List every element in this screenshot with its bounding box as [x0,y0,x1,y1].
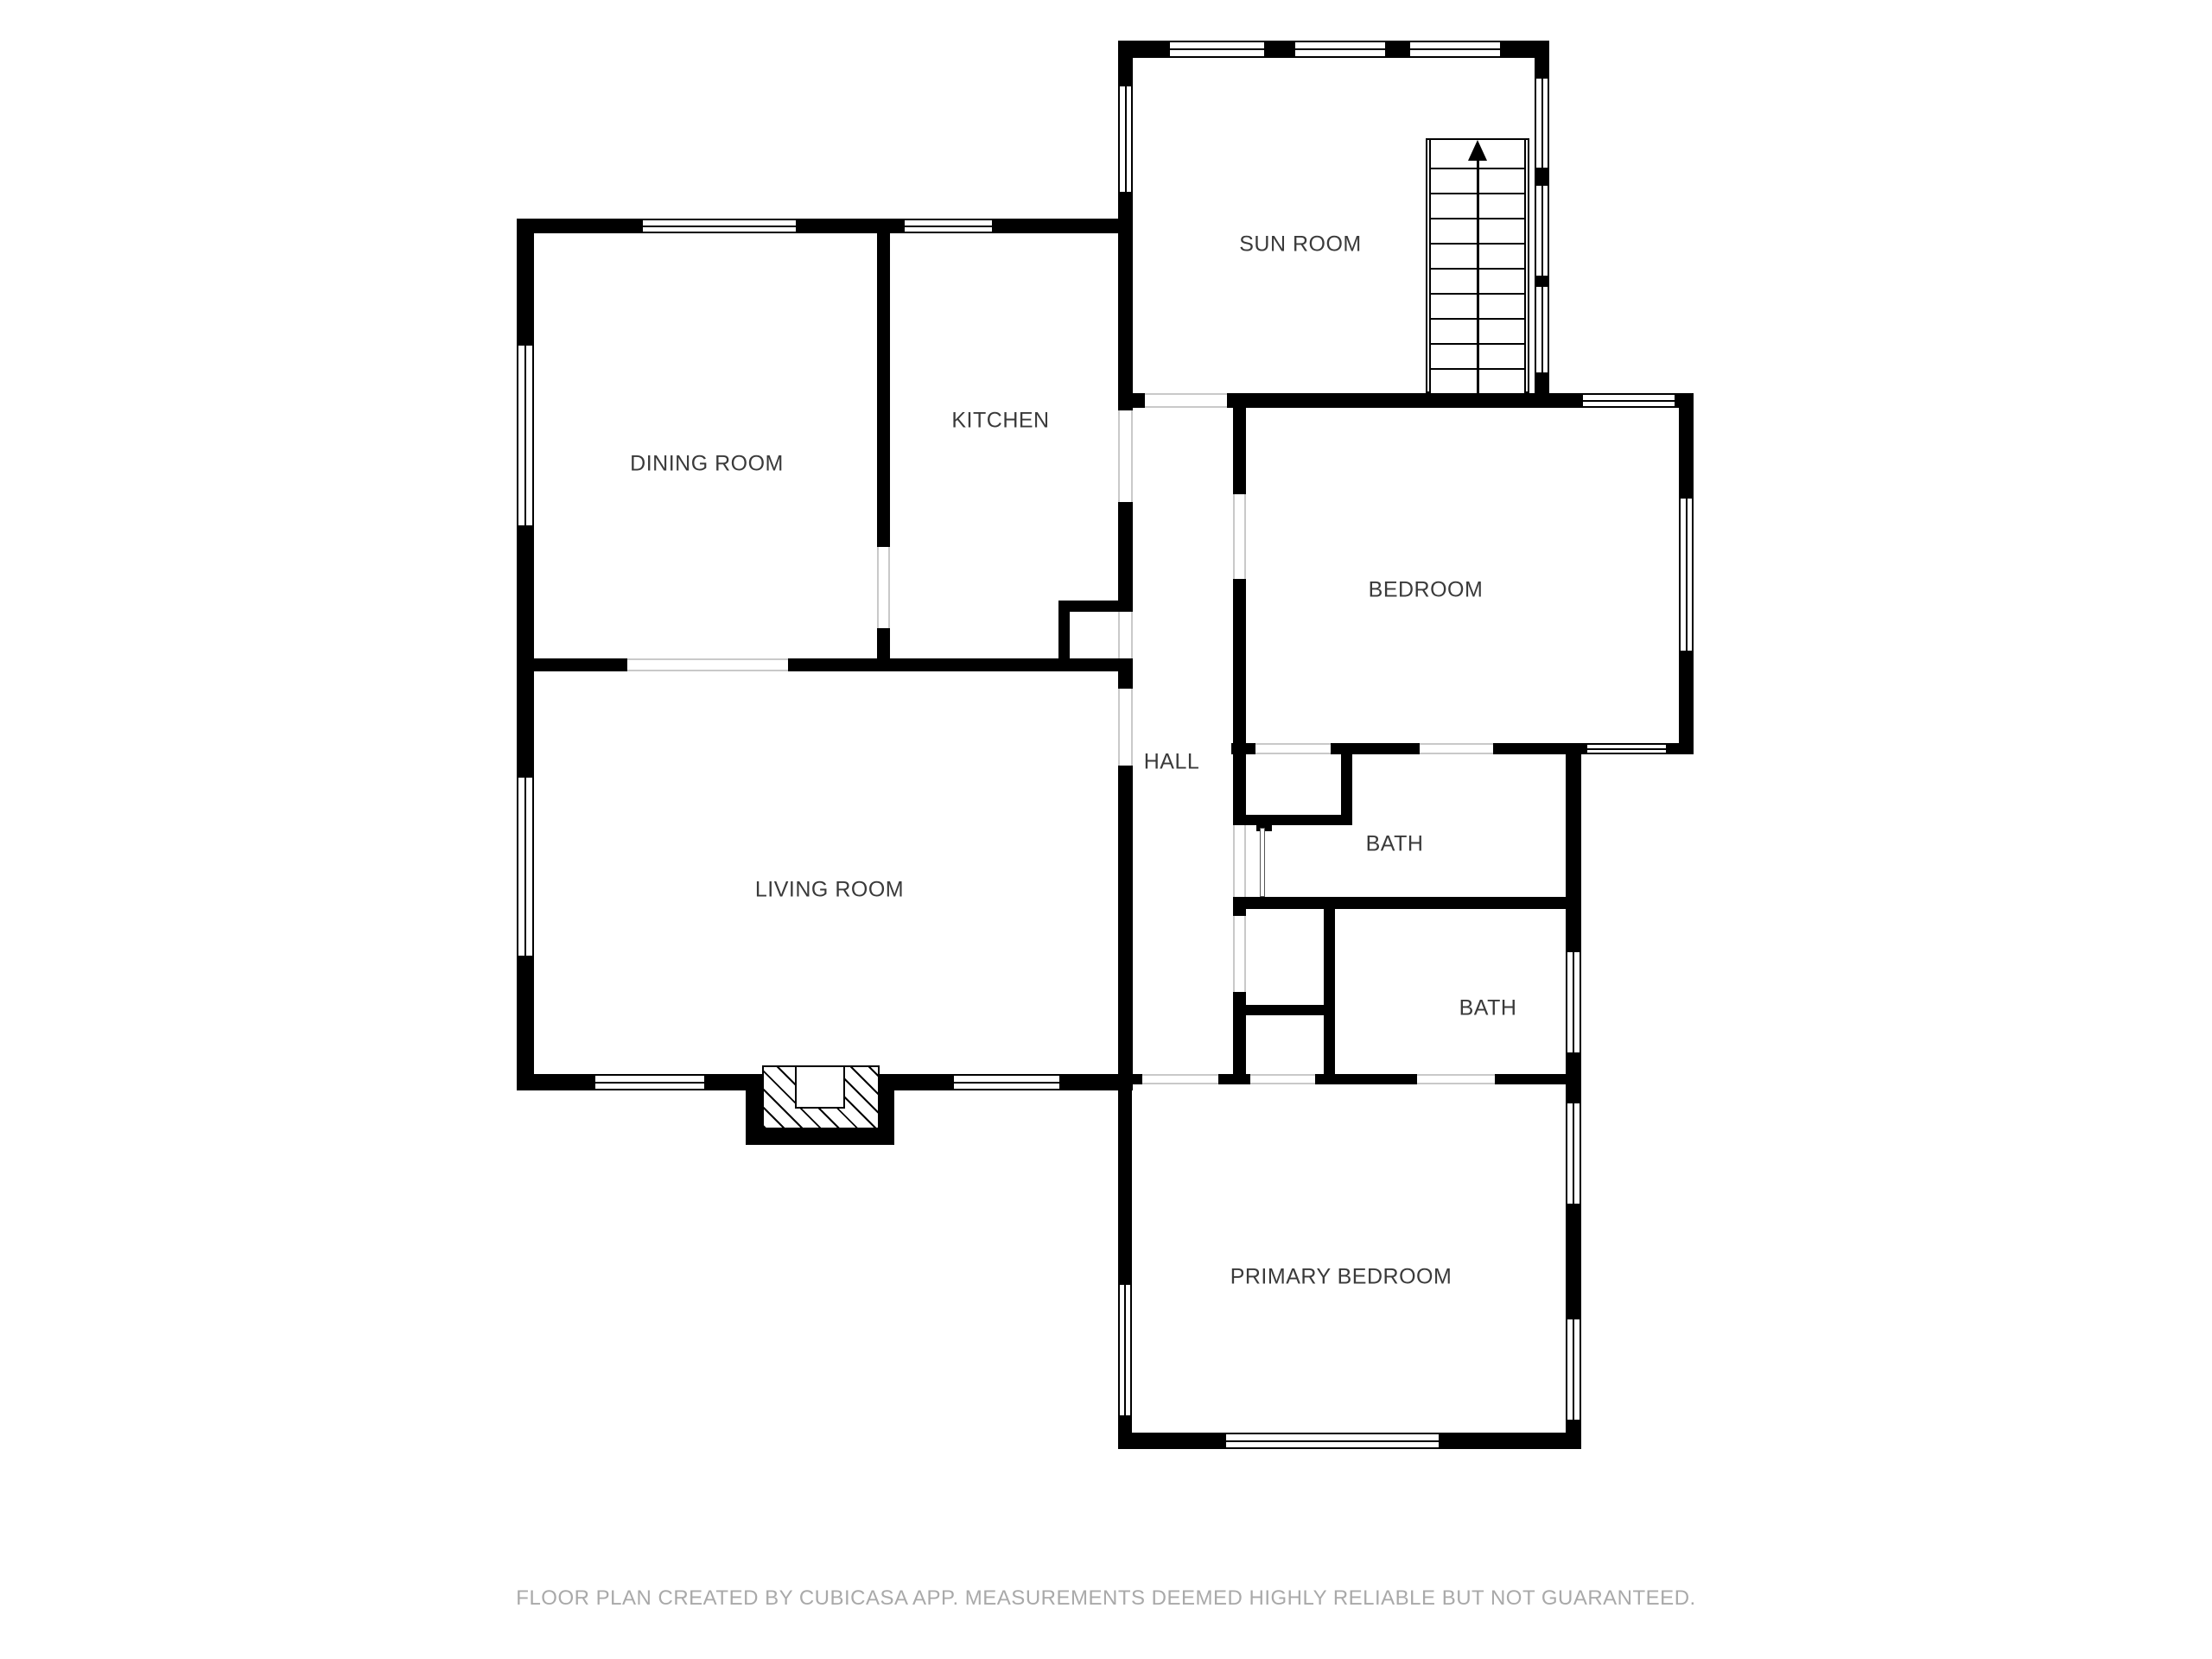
wall [1324,909,1335,1084]
window [1586,743,1668,754]
room-label-kitchen: KITCHEN [951,409,1049,434]
stair-step [1431,293,1524,295]
doorway-opening [1233,916,1246,992]
window [1224,1433,1440,1449]
window-mullion [1686,499,1688,651]
window [1581,393,1676,408]
wall [1341,743,1352,825]
wall [517,219,1133,233]
wall [1058,601,1070,671]
window [1535,77,1549,169]
room-label-bath-lower: BATH [1459,996,1517,1021]
window-mullion [524,346,526,525]
window [1679,497,1694,652]
window-mullion [643,226,796,227]
window-mullion [1573,1319,1574,1420]
doorway-opening [1233,825,1246,897]
doorway-opening [1118,410,1133,502]
doorway-opening [1255,743,1331,754]
window-mullion [1124,1285,1126,1415]
stair-step [1431,318,1524,320]
room-label-hall: HALL [1144,750,1200,775]
wall [746,1129,894,1145]
window-mullion [1125,86,1127,192]
window [1566,950,1581,1054]
door-leaf [1260,828,1265,897]
room-label-living-room: LIVING ROOM [755,878,904,903]
stair-step [1431,268,1524,270]
doorway-opening [1233,494,1246,579]
window [1566,1318,1581,1421]
wall [1233,815,1352,825]
stair-rail [1426,138,1431,393]
wall [517,658,1133,671]
window [517,776,534,957]
window-mullion [1587,748,1666,750]
doorway-opening [1420,743,1493,754]
window [641,219,798,233]
window-mullion [1573,1103,1574,1204]
wall [1233,408,1246,825]
window-mullion [1541,79,1543,168]
doorway-opening [1142,1074,1218,1084]
room-label-bedroom: BEDROOM [1369,578,1484,603]
wall [878,1090,894,1145]
window-mullion [524,778,526,956]
window-mullion [1573,952,1574,1052]
wall [1246,1005,1324,1015]
window-mullion [1170,48,1264,50]
doorway-opening [1145,393,1227,408]
floor-plan: FLOOR PLAN CREATED BY CUBICASA APP. MEAS… [0,0,2212,1659]
window-mullion [1583,400,1675,402]
window-mullion [1295,48,1385,50]
room-label-sun-room: SUN ROOM [1239,232,1362,257]
footer-disclaimer: FLOOR PLAN CREATED BY CUBICASA APP. MEAS… [516,1586,1695,1611]
stair-rail [1524,138,1529,393]
doorway-opening [1250,1074,1315,1084]
window [1566,1102,1581,1205]
window [1118,1283,1132,1417]
staircase [1426,138,1529,393]
window-mullion [1226,1440,1439,1442]
fireplace-firebox [795,1065,845,1109]
doorway-opening [627,658,788,671]
window-mullion [1541,287,1543,372]
window [1408,41,1502,58]
window [1294,41,1387,58]
stair-step [1431,368,1524,370]
stair-step [1431,243,1524,245]
stair-step [1431,343,1524,345]
window [1118,85,1133,194]
stair-step [1431,168,1524,169]
window [1535,184,1549,277]
window-mullion [954,1082,1059,1084]
window [903,219,994,233]
room-label-dining-room: DINING ROOM [630,452,784,477]
window-mullion [1410,48,1500,50]
room-label-primary-bedroom: PRIMARY BEDROOM [1230,1265,1452,1290]
room-label-bath-upper: BATH [1366,832,1424,857]
doorway-opening [1417,1074,1495,1084]
wall [1236,897,1581,909]
stair-step [1431,218,1524,219]
window [952,1074,1061,1090]
window-mullion [905,226,992,227]
stair-step [1431,193,1524,194]
window [517,344,534,527]
window [1535,285,1549,374]
stair-top-edge [1426,138,1529,140]
window [1168,41,1266,58]
window [594,1074,706,1090]
doorway-opening [877,547,890,628]
doorway-opening [1118,689,1133,766]
doorway-opening [1118,612,1133,658]
window-mullion [595,1082,704,1084]
window-mullion [1541,186,1543,276]
